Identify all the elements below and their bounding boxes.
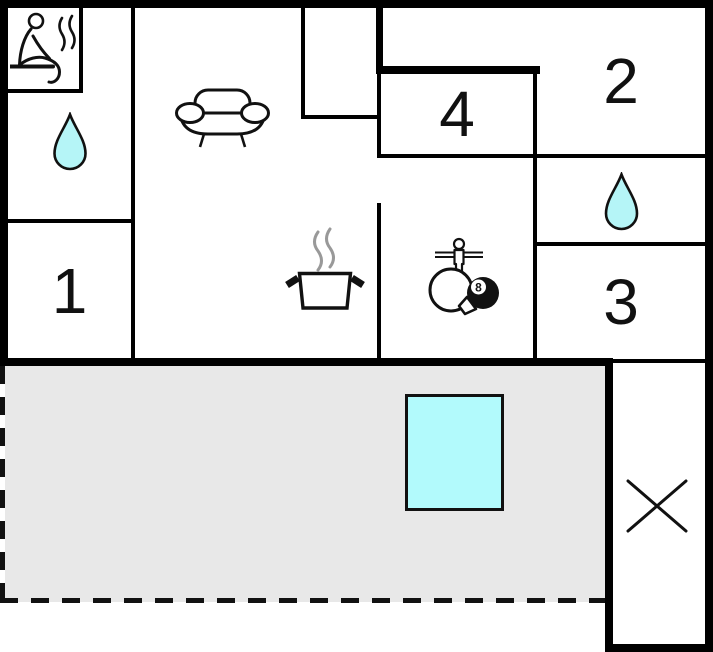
water-drop-icon-left [52, 112, 88, 174]
wall-segment [0, 0, 713, 8]
wall-segment [131, 8, 135, 358]
room-3-label: 3 [537, 246, 705, 358]
room-2-label: 2 [537, 8, 705, 154]
wall-segment [0, 358, 613, 366]
terrace-dashed-border-bottom [0, 598, 606, 603]
wall-segment [8, 89, 83, 93]
games-icon: 8 [415, 230, 505, 316]
wall-segment [377, 203, 381, 358]
wall-segment [79, 8, 83, 93]
wall-segment [381, 154, 705, 158]
terrace-area [5, 366, 605, 602]
wall-segment [605, 644, 713, 652]
floor-plan: 1 2 3 4 [0, 0, 713, 652]
wall-segment [376, 0, 383, 74]
cooking-pot-icon [284, 224, 366, 312]
wall-segment [605, 358, 613, 652]
wall-segment [301, 115, 381, 119]
cross-icon [624, 477, 690, 535]
wall-segment [301, 8, 305, 119]
room-4-label: 4 [381, 74, 533, 154]
wall-segment [376, 66, 540, 74]
room-1-label: 1 [8, 223, 131, 358]
water-drop-icon-right [603, 172, 640, 234]
wall-segment [613, 359, 705, 363]
sofa-icon [170, 80, 275, 150]
eight-ball-label: 8 [475, 281, 482, 295]
sauna-icon [10, 9, 78, 87]
wall-segment [0, 0, 8, 366]
wall-segment [705, 0, 713, 652]
terrace-dashed-border-left [0, 366, 5, 603]
pool [405, 394, 504, 511]
